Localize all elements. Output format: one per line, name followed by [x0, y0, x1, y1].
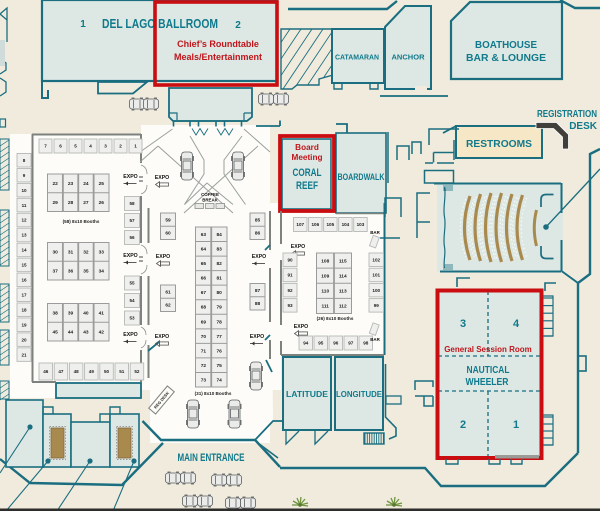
svg-text:21: 21 — [21, 352, 27, 357]
svg-text:EXPO: EXPO — [123, 253, 137, 259]
svg-text:103: 103 — [357, 222, 365, 227]
svg-text:5: 5 — [74, 144, 77, 149]
svg-text:Chief’s Roundtable: Chief’s Roundtable — [177, 39, 259, 49]
svg-text:EXPO: EXPO — [156, 254, 170, 260]
svg-text:EXPO: EXPO — [155, 175, 169, 181]
svg-text:1: 1 — [134, 144, 137, 149]
svg-text:EXPO: EXPO — [123, 332, 137, 338]
svg-text:99: 99 — [374, 303, 380, 308]
svg-text:1: 1 — [513, 419, 519, 431]
svg-text:73: 73 — [201, 377, 207, 383]
svg-text:8: 8 — [23, 158, 26, 163]
svg-text:48: 48 — [74, 369, 80, 374]
svg-text:9: 9 — [23, 173, 26, 178]
svg-text:WHEELER: WHEELER — [466, 376, 509, 388]
svg-text:81: 81 — [216, 276, 222, 282]
svg-text:74: 74 — [216, 377, 222, 383]
svg-text:16: 16 — [21, 278, 27, 283]
svg-text:80: 80 — [216, 290, 222, 296]
svg-text:60: 60 — [165, 231, 171, 237]
svg-text:7: 7 — [44, 144, 47, 149]
svg-text:BREAK: BREAK — [202, 198, 218, 203]
svg-text:4: 4 — [513, 318, 520, 330]
svg-text:114: 114 — [339, 273, 347, 279]
svg-text:46: 46 — [43, 369, 49, 374]
svg-text:84: 84 — [216, 232, 222, 238]
svg-text:71: 71 — [201, 348, 207, 354]
svg-text:Meeting: Meeting — [292, 153, 323, 162]
svg-text:DESK: DESK — [569, 121, 598, 132]
svg-text:BOARDWALK: BOARDWALK — [338, 172, 385, 182]
svg-text:63: 63 — [201, 232, 207, 238]
svg-text:43: 43 — [83, 329, 89, 335]
svg-text:12: 12 — [21, 218, 27, 223]
svg-text:24: 24 — [83, 181, 89, 187]
svg-text:14: 14 — [21, 248, 27, 253]
svg-text:42: 42 — [99, 329, 105, 335]
svg-text:BAR: BAR — [370, 230, 380, 235]
svg-text:REEF: REEF — [296, 180, 318, 192]
svg-text:General Session Room: General Session Room — [444, 345, 532, 354]
svg-text:BOATHOUSE: BOATHOUSE — [475, 39, 537, 51]
svg-text:45: 45 — [53, 329, 59, 335]
svg-text:2: 2 — [119, 144, 122, 149]
svg-text:72: 72 — [201, 363, 207, 369]
svg-text:17: 17 — [21, 292, 27, 297]
svg-text:58: 58 — [129, 201, 135, 206]
svg-text:53: 53 — [129, 316, 135, 321]
svg-text:100: 100 — [372, 288, 380, 293]
svg-text:(26) 8x10 Booths: (26) 8x10 Booths — [317, 316, 354, 321]
svg-text:REGISTRATION: REGISTRATION — [537, 109, 597, 120]
svg-text:18: 18 — [21, 307, 27, 312]
svg-text:41: 41 — [99, 311, 105, 317]
svg-text:79: 79 — [216, 305, 222, 311]
svg-text:LONGITUDE: LONGITUDE — [336, 389, 382, 399]
svg-text:15: 15 — [21, 263, 27, 268]
svg-text:105: 105 — [327, 222, 335, 227]
svg-text:88: 88 — [255, 301, 261, 307]
svg-text:2: 2 — [235, 20, 241, 31]
svg-text:110: 110 — [321, 289, 329, 295]
svg-text:97: 97 — [348, 341, 354, 346]
svg-text:69: 69 — [201, 319, 207, 325]
svg-text:LATITUDE: LATITUDE — [286, 389, 328, 399]
svg-text:EXPO: EXPO — [252, 254, 266, 260]
svg-text:64: 64 — [201, 247, 207, 253]
svg-text:36: 36 — [68, 268, 74, 274]
svg-text:COFFEE: COFFEE — [201, 192, 219, 197]
svg-text:BAR & LOUNGE: BAR & LOUNGE — [466, 52, 546, 64]
svg-text:31: 31 — [68, 250, 74, 256]
svg-text:85: 85 — [255, 217, 261, 223]
svg-text:92: 92 — [287, 288, 293, 293]
svg-text:MAIN ENTRANCE: MAIN ENTRANCE — [178, 452, 245, 464]
svg-text:4: 4 — [89, 144, 92, 149]
svg-text:11: 11 — [22, 203, 27, 208]
svg-text:75: 75 — [216, 363, 222, 369]
svg-text:RESTROOMS: RESTROOMS — [466, 139, 532, 150]
svg-text:DEL LAGO BALLROOM: DEL LAGO BALLROOM — [102, 16, 218, 31]
svg-text:101: 101 — [372, 273, 380, 278]
svg-text:23: 23 — [68, 181, 74, 187]
svg-text:107: 107 — [296, 222, 304, 227]
svg-text:3: 3 — [460, 318, 466, 330]
svg-text:67: 67 — [201, 290, 207, 296]
svg-text:35: 35 — [83, 268, 89, 274]
svg-text:109: 109 — [321, 273, 329, 279]
svg-text:29: 29 — [53, 200, 59, 206]
svg-text:54: 54 — [129, 298, 135, 303]
svg-text:52: 52 — [134, 369, 140, 374]
svg-text:EXPO: EXPO — [155, 334, 169, 340]
svg-text:87: 87 — [255, 288, 261, 294]
svg-text:57: 57 — [129, 218, 135, 223]
svg-text:20: 20 — [21, 337, 27, 342]
svg-text:115: 115 — [339, 258, 347, 264]
svg-text:90: 90 — [287, 257, 293, 262]
svg-text:28: 28 — [68, 200, 74, 206]
svg-text:65: 65 — [201, 261, 207, 267]
svg-text:93: 93 — [287, 303, 293, 308]
svg-text:38: 38 — [53, 311, 59, 317]
svg-text:19: 19 — [21, 322, 27, 327]
svg-text:112: 112 — [339, 304, 347, 310]
svg-text:2: 2 — [460, 419, 466, 431]
svg-text:37: 37 — [53, 268, 59, 274]
svg-text:91: 91 — [287, 273, 293, 278]
svg-text:59: 59 — [165, 217, 171, 223]
svg-text:40: 40 — [83, 311, 89, 317]
svg-text:39: 39 — [68, 311, 74, 317]
svg-text:EXPO: EXPO — [123, 174, 137, 180]
svg-text:(31) 8x10 Booths: (31) 8x10 Booths — [195, 391, 232, 396]
svg-text:CATAMARAN: CATAMARAN — [335, 53, 379, 62]
svg-text:27: 27 — [83, 200, 89, 206]
svg-text:1: 1 — [80, 19, 86, 30]
svg-text:EXPO: EXPO — [250, 334, 264, 340]
svg-text:EXPO: EXPO — [291, 244, 305, 250]
svg-text:55: 55 — [129, 281, 135, 286]
svg-text:6: 6 — [59, 144, 62, 149]
svg-text:26: 26 — [99, 200, 105, 206]
svg-text:(58) 8x10 Booths: (58) 8x10 Booths — [63, 219, 100, 224]
svg-text:51: 51 — [119, 369, 125, 374]
svg-text:NAUTICAL: NAUTICAL — [467, 364, 510, 376]
svg-text:102: 102 — [372, 257, 380, 262]
svg-text:Board: Board — [295, 143, 319, 152]
svg-text:50: 50 — [104, 369, 110, 374]
svg-text:47: 47 — [58, 369, 64, 374]
svg-text:CORAL: CORAL — [293, 167, 322, 179]
svg-text:77: 77 — [216, 334, 222, 340]
svg-text:106: 106 — [311, 222, 319, 227]
svg-text:108: 108 — [321, 258, 329, 264]
svg-text:25: 25 — [99, 181, 105, 187]
svg-text:98: 98 — [363, 341, 369, 346]
svg-text:86: 86 — [255, 231, 261, 237]
svg-text:82: 82 — [216, 261, 222, 267]
svg-text:Meals/Entertainment: Meals/Entertainment — [174, 52, 262, 62]
svg-text:104: 104 — [342, 222, 350, 227]
svg-text:70: 70 — [201, 334, 207, 340]
svg-text:EXPO: EXPO — [294, 324, 308, 330]
svg-text:32: 32 — [83, 250, 89, 256]
svg-text:83: 83 — [216, 247, 222, 253]
svg-text:62: 62 — [165, 303, 171, 309]
svg-text:113: 113 — [339, 289, 347, 295]
svg-text:3: 3 — [104, 144, 107, 149]
svg-text:ANCHOR: ANCHOR — [392, 53, 426, 62]
svg-text:94: 94 — [303, 341, 309, 346]
svg-text:95: 95 — [318, 341, 324, 346]
svg-text:49: 49 — [89, 369, 95, 374]
svg-text:68: 68 — [201, 305, 207, 311]
svg-text:BAR: BAR — [370, 337, 380, 342]
svg-text:66: 66 — [201, 276, 207, 282]
svg-text:76: 76 — [216, 348, 222, 354]
svg-text:10: 10 — [21, 188, 27, 193]
svg-text:78: 78 — [216, 319, 222, 325]
svg-text:44: 44 — [68, 329, 74, 335]
svg-text:56: 56 — [129, 235, 135, 240]
svg-text:22: 22 — [53, 181, 59, 187]
svg-text:30: 30 — [53, 250, 59, 256]
svg-text:34: 34 — [99, 268, 105, 274]
svg-text:33: 33 — [99, 250, 105, 256]
svg-text:13: 13 — [21, 233, 27, 238]
svg-text:111: 111 — [322, 304, 330, 310]
svg-text:96: 96 — [333, 341, 339, 346]
svg-text:61: 61 — [165, 289, 171, 295]
